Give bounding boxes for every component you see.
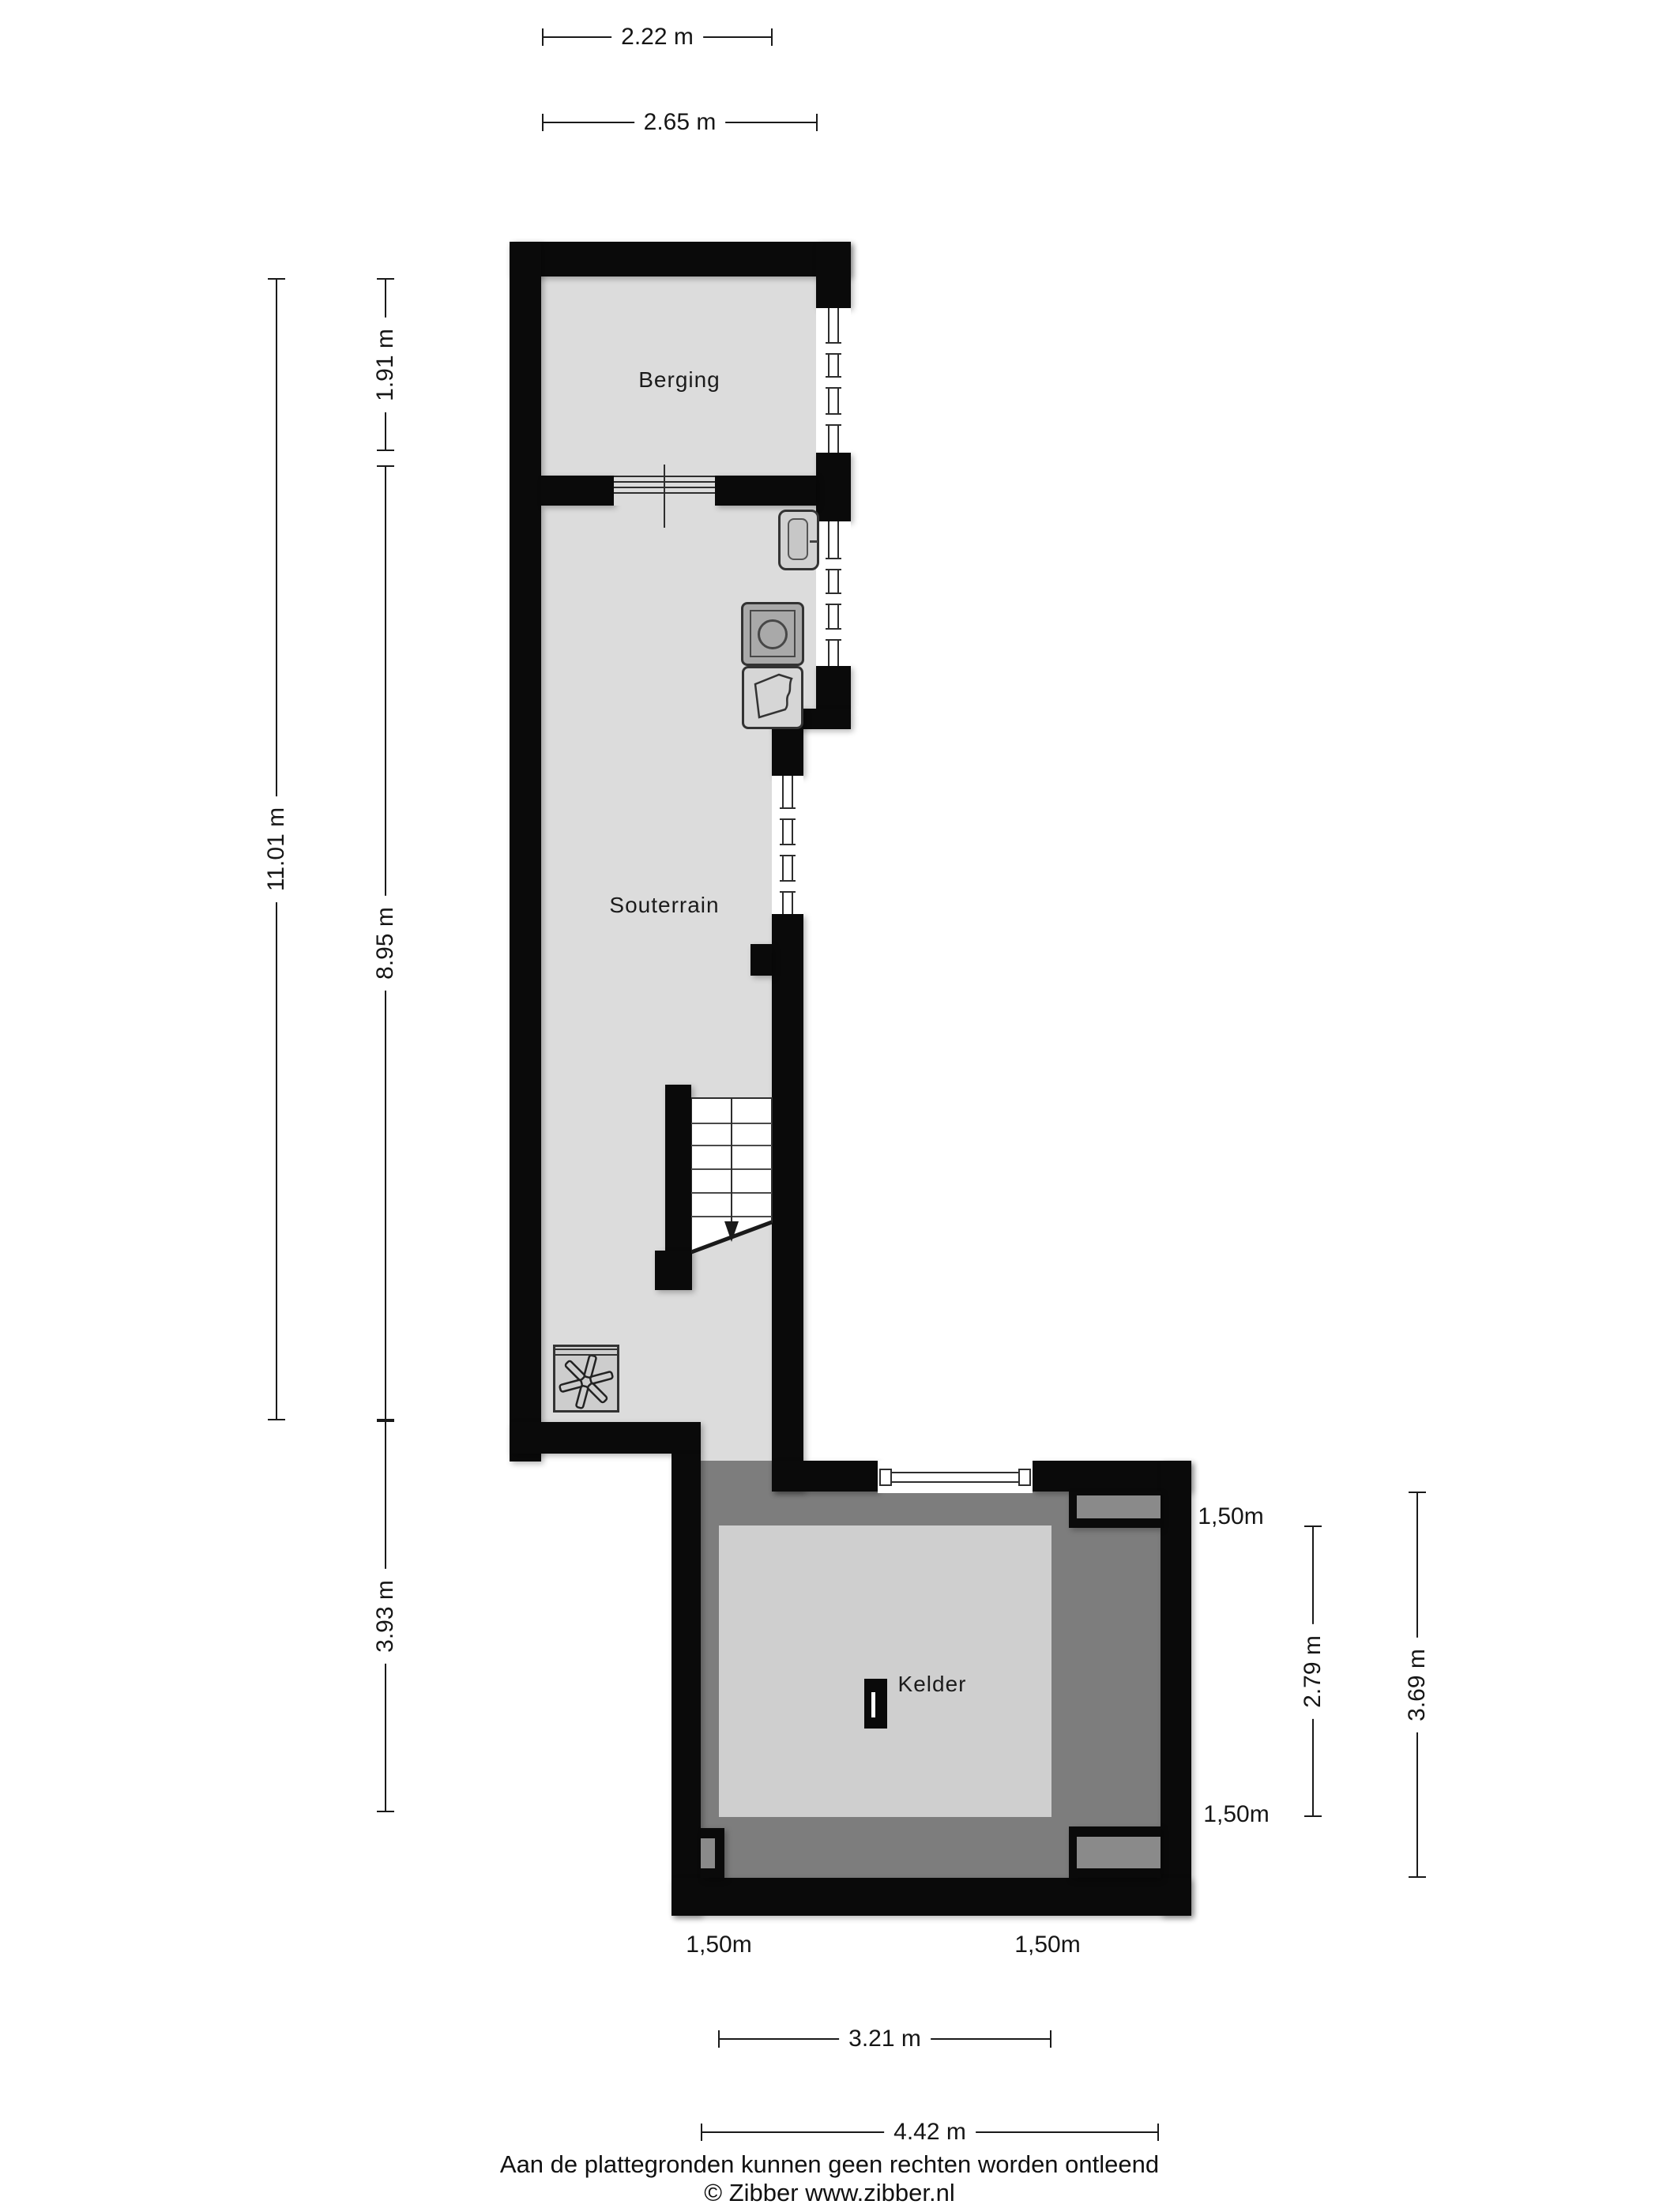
headroom-label-bottom-right: 1,50m (1014, 1932, 1080, 1958)
laundry-tub-outline-icon (744, 668, 801, 727)
footer-copyright: © Zibber www.zibber.nl (0, 2179, 1659, 2207)
window-kelder-icon (878, 1461, 1033, 1493)
washing-machine-drum-icon (758, 619, 788, 649)
headroom-label-top-right: 1,50m (1198, 1503, 1263, 1530)
dimension-top-inner: 2.22 m (542, 36, 773, 38)
room-label-berging: Berging (638, 367, 720, 393)
window-souterrain-lower-icon (772, 776, 803, 914)
dimension-top-outer: 2.65 m (542, 122, 818, 123)
window-stop-icon (1018, 1469, 1031, 1486)
wall-right-upper-b (816, 453, 851, 521)
niche-top-right (1077, 1495, 1161, 1518)
dimension-bottom-total: 4.42 m (701, 2131, 1159, 2133)
niche-bottom-right (1077, 1837, 1161, 1868)
room-label-kelder: Kelder (898, 1672, 967, 1697)
wall-right-lower-b (772, 914, 803, 1492)
wall-berging-bottom-right (715, 476, 816, 506)
dimension-right-kelder-inner: 2.79 m (1312, 1525, 1314, 1817)
room-label-souterrain: Souterrain (609, 893, 719, 918)
window-berging-icon (816, 308, 851, 453)
room-souterrain-floor-main (541, 709, 772, 1422)
wall-right-upper-a (816, 242, 851, 308)
dimension-label: 2.65 m (634, 106, 726, 139)
dimension-label: 11.01 m (261, 796, 292, 902)
sink-icon (778, 510, 819, 570)
wall-berging-bottom-left (541, 476, 614, 506)
window-mullion-icon (826, 592, 841, 605)
dimension-label: 8.95 m (371, 896, 401, 991)
washing-machine-icon (741, 602, 804, 666)
dimension-label: 2.22 m (611, 21, 703, 54)
window-souterrain-upper-icon (816, 521, 851, 666)
dimension-bottom-inner: 3.21 m (718, 2038, 1051, 2040)
wall-souterrain-bottom (510, 1422, 701, 1454)
fan-blades-icon (555, 1347, 617, 1410)
dimension-label: 3.21 m (839, 2022, 931, 2056)
dimension-label: 3.93 m (371, 1569, 401, 1664)
chimney-block (750, 944, 772, 976)
window-glass-icon (881, 1472, 1029, 1483)
window-mullion-icon (780, 807, 796, 820)
dimension-label: 3.69 m (1402, 1638, 1432, 1732)
headroom-label-mid-right: 1,50m (1203, 1801, 1269, 1828)
fan-icon (553, 1345, 619, 1413)
wall-left (510, 242, 541, 1461)
kelder-hatch-icon (864, 1679, 887, 1729)
laundry-tub-icon (742, 666, 803, 729)
wall-kelder-top-left (772, 1461, 878, 1492)
kelder-hatch-slit-icon (871, 1692, 875, 1717)
dimension-label: 4.42 m (884, 2116, 976, 2149)
stairs-icon (691, 1097, 773, 1256)
window-mullion-icon (780, 880, 796, 893)
kelder-headroom-zone (719, 1525, 1051, 1817)
window-mullion-icon (780, 844, 796, 856)
dimension-left-kelder: 3.93 m (385, 1420, 386, 1812)
sink-basin-icon (788, 518, 808, 560)
wall-top (510, 242, 851, 276)
window-mullion-icon (826, 342, 841, 355)
door-center-line-icon (664, 465, 665, 528)
dimension-label: 2.79 m (1298, 1624, 1328, 1719)
niche-bottom-left (701, 1838, 715, 1868)
footer-disclaimer: Aan de plattegronden kunnen geen rechten… (0, 2150, 1659, 2179)
window-mullion-icon (826, 413, 841, 426)
floorplan-canvas: Berging Souterrain Kelder 2.22 m 2.65 m … (0, 0, 1659, 2212)
fan-grille-icon (555, 1349, 617, 1356)
wall-right-upper-c (816, 666, 851, 709)
window-mullion-icon (826, 376, 841, 389)
window-mullion-icon (826, 558, 841, 570)
wall-kelder-right (1161, 1461, 1191, 1916)
stair-wall-foot (655, 1251, 692, 1290)
sink-tap-icon (810, 540, 818, 543)
dimension-left-total: 11.01 m (276, 278, 277, 1420)
wall-kelder-left (671, 1454, 701, 1916)
dimension-label: 1.91 m (371, 318, 401, 412)
passage-floor (701, 1422, 772, 1461)
dimension-left-berging: 1.91 m (385, 278, 386, 451)
stair-wall (665, 1085, 691, 1251)
dimension-right-kelder-total: 3.69 m (1416, 1492, 1418, 1878)
window-mullion-icon (826, 628, 841, 641)
wall-kelder-bottom (671, 1878, 1191, 1916)
window-stop-icon (879, 1469, 892, 1486)
headroom-label-bottom-left: 1,50m (686, 1932, 751, 1958)
dimension-left-souterrain: 8.95 m (385, 465, 386, 1420)
